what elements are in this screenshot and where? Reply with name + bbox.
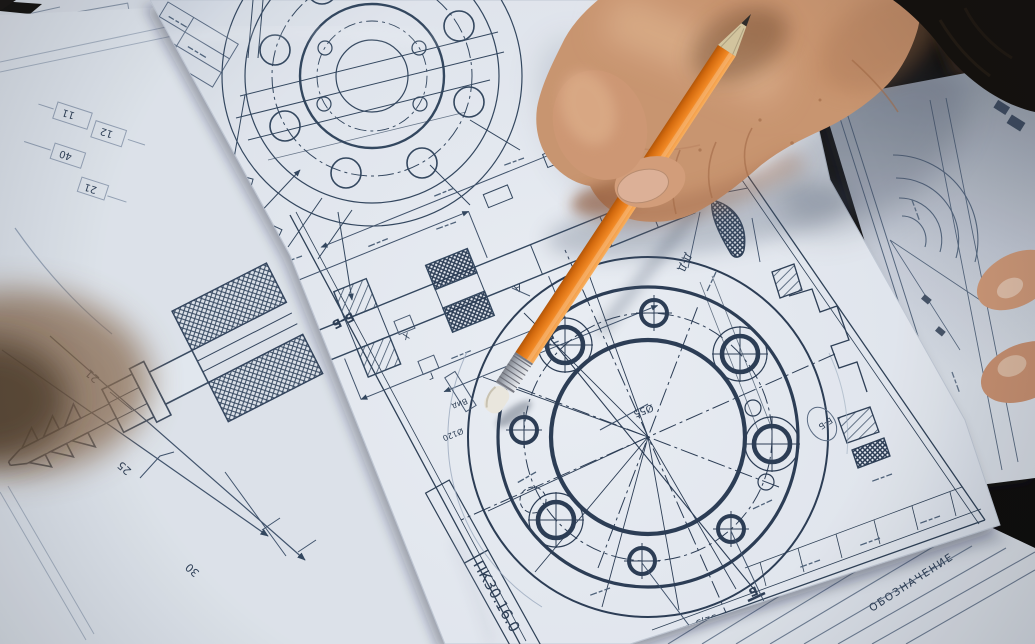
photo-blueprints-scene: 11 12 40 21	[0, 0, 1035, 644]
cool-tint-overlay	[0, 0, 1035, 644]
scene-canvas: 11 12 40 21	[0, 0, 1035, 644]
